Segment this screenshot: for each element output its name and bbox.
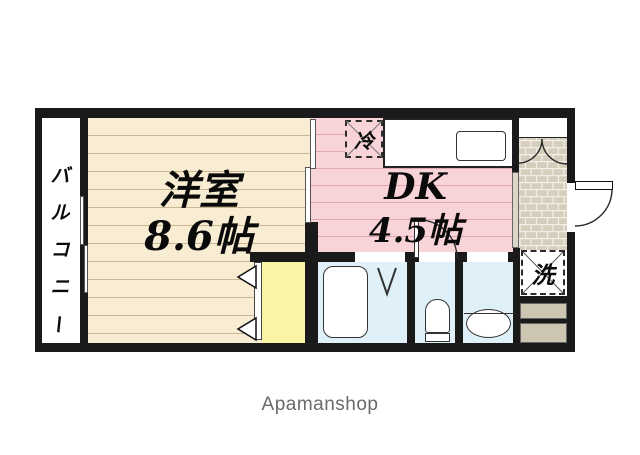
balcony-char: コ	[50, 235, 69, 262]
balcony-label: バ ル コ ニ ー	[42, 168, 78, 328]
front-door-arc	[575, 189, 612, 226]
wall-washer-step	[520, 296, 567, 303]
front-door-leaf	[575, 181, 613, 190]
entrance-double-door-right-arc	[542, 139, 567, 164]
wall-entrance-lower	[513, 248, 520, 343]
toilet-base	[425, 333, 450, 342]
balcony-char: ニ	[50, 272, 69, 299]
balcony-char: バ	[50, 161, 69, 188]
wall-toilet-washbasin	[455, 252, 463, 343]
western-room-size: 8.6帖	[88, 214, 310, 260]
balcony-char: ル	[50, 198, 69, 225]
shoe-cabinet	[518, 115, 567, 139]
wall-bath-toilet	[407, 252, 415, 343]
sliding-door-upper	[310, 119, 316, 169]
balcony-char: ー	[46, 311, 75, 333]
brand-text: Apamanshop	[0, 394, 640, 416]
entrance-step-upper	[520, 303, 567, 319]
wall-left	[35, 108, 42, 352]
bathtub	[323, 266, 368, 338]
kitchen-sink	[456, 131, 506, 161]
closet-door-track	[254, 262, 262, 340]
front-door-gap	[567, 183, 575, 232]
toilet-bowl	[425, 299, 450, 333]
western-room-name: 洋室	[88, 168, 310, 214]
dk-entrance-step	[512, 172, 519, 248]
washing-machine-label: 洗	[521, 250, 565, 295]
entrance-double-door-left-arc	[518, 139, 542, 163]
closet-floor	[262, 262, 305, 343]
washbasin-rim	[464, 313, 513, 314]
western-room-label: 洋室 8.6帖	[88, 168, 310, 260]
balcony-window-upper	[80, 196, 84, 245]
refrigerator-label: 冷	[345, 120, 383, 158]
dk-label: DK 4.5帖	[318, 165, 513, 253]
wall-bottomrow-d	[508, 252, 520, 262]
wall-step-divider	[520, 319, 567, 323]
floorplan-canvas: バ ル コ ニ ー 洋室 8.6帖 DK 4.5帖 冷 洗 Apamanshop	[0, 0, 640, 455]
wall-bottom	[35, 343, 575, 352]
entrance-step-lower	[520, 323, 567, 343]
wall-top	[35, 108, 575, 118]
dk-name: DK	[318, 165, 513, 209]
wall-entrance-upper	[512, 115, 519, 172]
dk-size: 4.5帖	[318, 209, 513, 253]
